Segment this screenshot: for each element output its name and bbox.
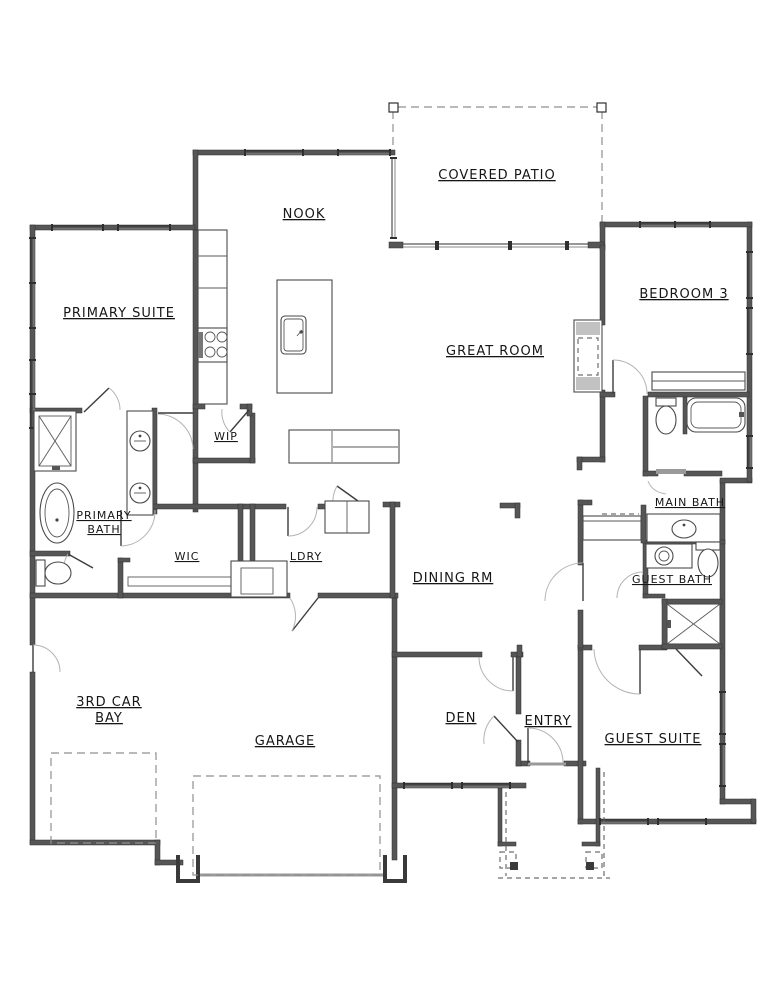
pantry-door	[222, 409, 249, 432]
bay-door-overhead	[51, 753, 156, 843]
kitchen-island	[277, 280, 332, 393]
patio-post	[389, 103, 398, 112]
primary-hall-door	[158, 413, 193, 449]
main-bath-pocket-door	[656, 469, 686, 474]
bedroom3-door	[613, 360, 647, 394]
primary-toilet	[36, 560, 71, 586]
guest-suite-door	[594, 649, 640, 694]
washer-dryer	[325, 501, 369, 533]
label-bedroom-3: BEDROOM 3	[639, 287, 728, 302]
primary-freestanding-tub	[40, 483, 74, 543]
garage-entry-door	[290, 598, 318, 631]
label-guest-suite: GUEST SUITE	[605, 732, 702, 747]
label-nook: NOOK	[283, 207, 326, 222]
garage-front	[51, 753, 407, 883]
label-garage: GARAGE	[255, 734, 315, 749]
primary-shower	[34, 411, 76, 471]
island-sink	[281, 316, 306, 354]
main-bath-label-leader	[648, 481, 666, 494]
laundry-door	[288, 507, 317, 536]
hall-door	[545, 563, 583, 601]
label-wic: WIC	[175, 550, 200, 563]
den-angled-door	[484, 716, 518, 744]
label-main-bath: MAIN BATH	[655, 496, 725, 509]
side-yard-door	[33, 645, 60, 672]
label-den: DEN	[446, 711, 477, 726]
great-room-built-in	[289, 430, 399, 463]
floor-plan-drawing: COVERED PATIO NOOK PRIMARY SUITE BEDROOM…	[0, 0, 773, 1000]
label-guest-bath: GUEST BATH	[632, 573, 712, 586]
label-primary-bath-1: PRIMARY	[76, 509, 131, 522]
label-covered-patio: COVERED PATIO	[438, 168, 555, 183]
label-dining-rm: DINING RM	[413, 571, 494, 586]
front-door	[528, 728, 563, 763]
bedroom3-built-in	[652, 372, 745, 390]
garage-door-overhead	[193, 776, 380, 875]
guest-bath-vanity	[646, 544, 692, 568]
label-ldry: LDRY	[290, 550, 322, 563]
primary-suite-bath-door	[84, 388, 120, 412]
label-wip: WIP	[214, 430, 238, 443]
patio-post	[597, 103, 606, 112]
guest-shower-door	[676, 649, 702, 676]
sliding-glass-wall	[403, 241, 588, 250]
main-bath-vanity	[647, 514, 720, 542]
oven-front	[198, 332, 203, 358]
main-bath-toilet	[656, 398, 676, 434]
label-great-room: GREAT ROOM	[446, 344, 544, 359]
hall-linen-cabinet	[583, 514, 641, 540]
floor-plan-sheet: COVERED PATIO NOOK PRIMARY SUITE BEDROOM…	[0, 0, 773, 1000]
mud-bench	[231, 561, 287, 597]
closet-shelf	[128, 577, 232, 586]
label-3rd-car-2: BAY	[95, 711, 123, 726]
label-entry: ENTRY	[524, 714, 571, 729]
label-primary-suite: PRIMARY SUITE	[63, 306, 175, 321]
media-niche	[574, 320, 602, 392]
guest-shower	[667, 604, 720, 644]
primary-double-vanity	[127, 411, 153, 515]
guest-bath-toilet	[696, 542, 720, 577]
window	[390, 157, 397, 239]
shower-valve	[667, 620, 671, 628]
label-3rd-car-1: 3RD CAR	[76, 695, 141, 710]
kitchen	[198, 230, 332, 404]
range-cooktop	[198, 328, 227, 362]
main-bath-tub	[687, 398, 745, 432]
den-door	[479, 657, 513, 691]
shower-valve	[52, 466, 60, 470]
label-primary-bath-2: BATH	[87, 523, 120, 536]
